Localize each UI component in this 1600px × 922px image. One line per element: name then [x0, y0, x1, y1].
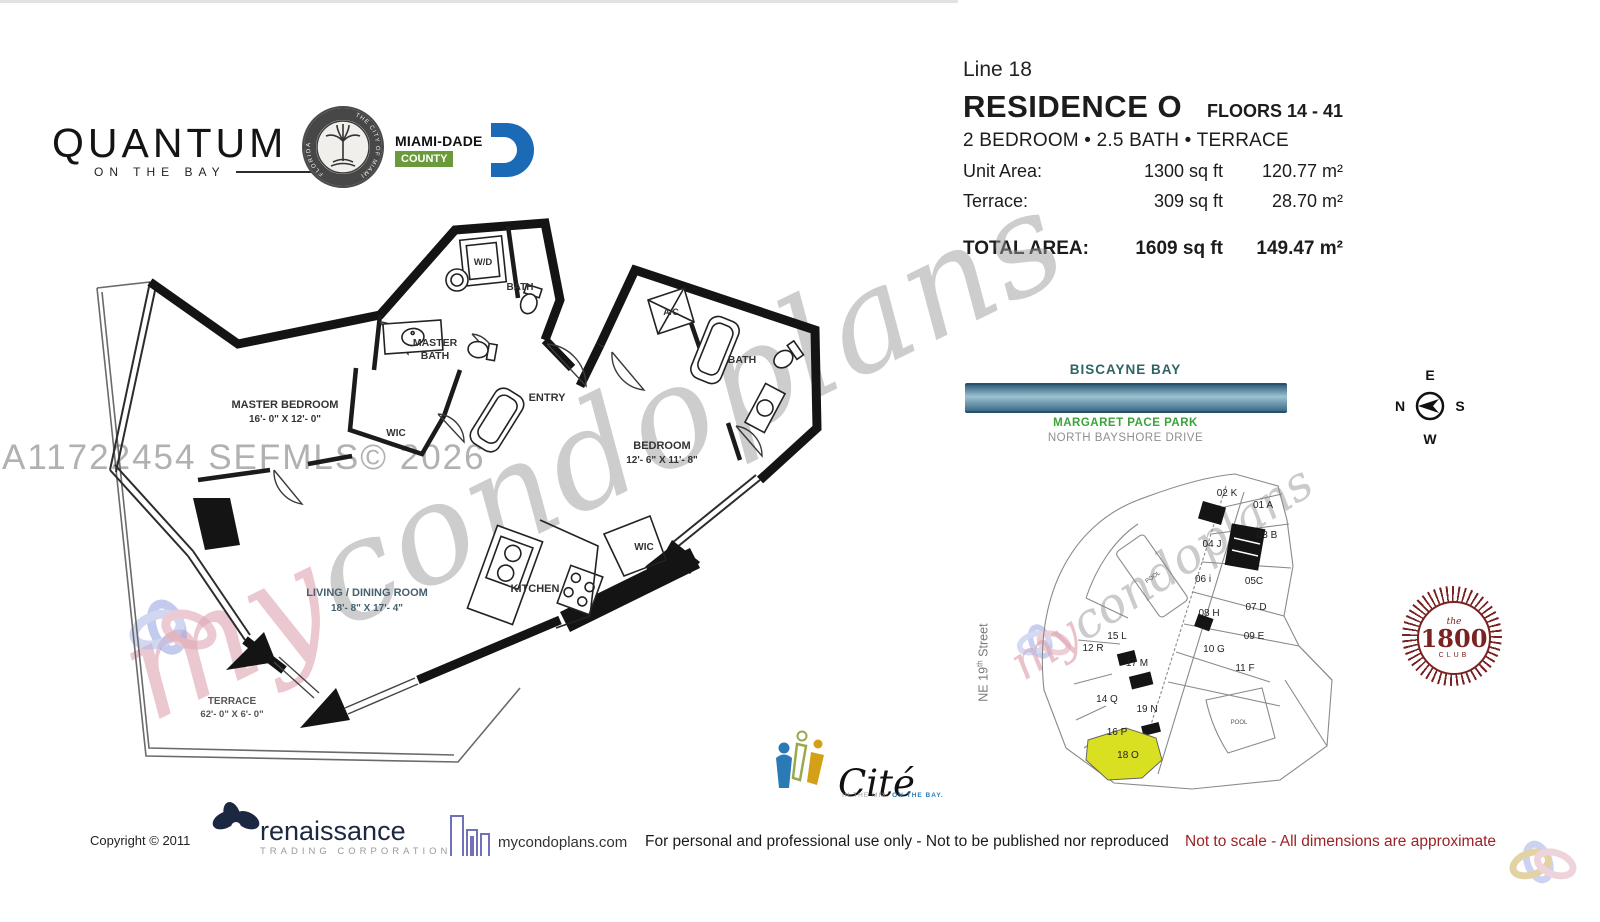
quantum-subtitle: ON THE BAY — [94, 165, 226, 179]
unit-18O: 18 O — [1117, 750, 1139, 761]
powder-bath-label: BATH — [506, 282, 533, 293]
master-bedroom-dims: 16'- 0" X 12'- 0" — [249, 414, 321, 425]
unit-19N: 19 N — [1136, 704, 1157, 715]
scan-edge — [0, 0, 958, 3]
unit-area-sqft: 1300 sq ft — [1113, 161, 1223, 182]
bedroom-tub — [688, 313, 742, 386]
club-1800-number: 1800 — [1421, 627, 1488, 651]
street-sup: th — [975, 660, 984, 667]
quantum-title: QUANTUM — [52, 120, 328, 167]
terrace-dims: 62'- 0" X 6'- 0" — [200, 709, 263, 720]
master-bath-label-2: BATH — [421, 350, 449, 362]
renaissance-logo: renaissance TRADING CORPORATION — [212, 800, 451, 857]
bedroom-label: BEDROOM — [633, 440, 690, 452]
ac-label: A/C — [663, 307, 679, 317]
residence-title: RESIDENCE O — [963, 89, 1182, 125]
pool-upper-label: POOL — [1145, 570, 1163, 585]
trefoil-watermark-corner — [1508, 838, 1578, 912]
unit-14Q: 14 Q — [1096, 694, 1118, 705]
unit-05C: 05C — [1245, 576, 1263, 587]
unit-04J: 04 J — [1203, 539, 1222, 550]
compass-needle — [1418, 399, 1439, 413]
unit-16P: 16 P — [1107, 727, 1128, 738]
mycondoplans-buildings-icon — [448, 810, 492, 858]
terrace-area-sqft: 309 sq ft — [1113, 191, 1223, 212]
unit-02K: 02 K — [1217, 488, 1238, 499]
total-area-sqm: 149.47 m² — [1223, 238, 1343, 260]
miami-dade-county: COUNTY — [395, 151, 453, 167]
cite-figures-icon — [772, 722, 834, 800]
compass-e: E — [1425, 367, 1434, 383]
living-dining-dims: 18'- 8" X 17'- 4" — [331, 603, 403, 614]
compass-n: N — [1395, 398, 1405, 414]
floors-label: FLOORS 14 - 41 — [1207, 101, 1343, 122]
renaissance-trefoil-icon — [212, 800, 260, 856]
biscayne-bay-label: BISCAYNE BAY — [963, 362, 1288, 377]
cite-tagline: IN THE MIX. ON THE BAY. — [842, 792, 944, 799]
bedroom-toilet — [770, 341, 804, 372]
terrace-label: TERRACE — [208, 696, 257, 707]
living-dining-label: LIVING / DINING ROOM — [306, 587, 428, 599]
entry-label: ENTRY — [529, 392, 567, 404]
wall-chunks — [193, 498, 700, 632]
pool-lower-label: POOL — [1231, 720, 1248, 726]
line-label: Line 18 — [963, 58, 1343, 82]
biscayne-bay-water — [965, 383, 1287, 413]
unit-03B: 03 B — [1257, 530, 1278, 541]
renaissance-name: renaissance — [260, 818, 451, 845]
unit-17M: 17 M — [1126, 658, 1148, 669]
unit-08H: 08 H — [1198, 608, 1219, 619]
club-1800-club: CLUB — [1439, 652, 1470, 659]
renaissance-sub: TRADING CORPORATION — [260, 846, 451, 857]
unit-01A: 01 A — [1253, 500, 1273, 511]
bedroom-vanity — [745, 383, 785, 432]
margaret-pace-park-label: MARGARET PACE PARK — [963, 417, 1288, 429]
terrace-outline — [97, 282, 520, 762]
cite-logo: Cité — [772, 722, 915, 800]
site-key-plan: POOL POOL 02 K 01 A 03 B 04 J 06 i 05C 0… — [1030, 448, 1340, 793]
unit-15L: 15 L — [1107, 631, 1127, 642]
mycondoplans-url: mycondoplans.com — [498, 834, 627, 851]
city-of-miami-seal: THE CITY OF MIAMI FLORIDA — [301, 105, 385, 189]
street-prefix: NE 19 — [977, 667, 991, 702]
cite-tagline-gray: IN THE MIX. — [842, 792, 889, 799]
wd-label: W/D — [474, 257, 493, 268]
master-bath-label-1: MASTER — [413, 337, 458, 349]
terrace-area-sqm: 28.70 m² — [1223, 191, 1343, 212]
compass-w: W — [1423, 431, 1437, 447]
unit-10G: 10 G — [1203, 644, 1225, 655]
master-tub — [466, 384, 527, 455]
quantum-logo: QUANTUM ON THE BAY — [52, 120, 328, 179]
miami-dade-name: MIAMI-DADE — [395, 133, 483, 149]
residence-subtitle: 2 BEDROOM • 2.5 BATH • TERRACE — [963, 130, 1343, 152]
unit-09E: 09 E — [1244, 631, 1265, 642]
miami-dade-logo: MIAMI-DADE COUNTY — [395, 121, 537, 179]
compass-s: S — [1455, 398, 1464, 414]
miami-dade-d-icon — [487, 121, 537, 179]
street-suffix: Street — [977, 623, 991, 656]
compass-rose: E N S W — [1390, 362, 1470, 447]
bedroom-dims: 12'- 6" X 11'- 8" — [626, 455, 698, 466]
unit-06i: 06 i — [1195, 574, 1211, 585]
kitchen-island — [467, 525, 542, 624]
unit-11F: 11 F — [1235, 663, 1254, 674]
floor-plan: MASTER BEDROOM 16'- 0" X 12'- 0" MASTER … — [88, 218, 823, 778]
ne-19th-street-label: NE 19th Street — [975, 583, 990, 743]
usage-disclaimer: For personal and professional use only -… — [645, 833, 1169, 851]
unit-12R: 12 R — [1082, 643, 1103, 654]
kitchen-wic-label: WIC — [634, 542, 653, 553]
cite-tagline-blue: ON THE BAY. — [892, 792, 944, 799]
copyright-text: Copyright © 2011 — [90, 833, 190, 848]
scale-disclaimer: Not to scale - All dimensions are approx… — [1185, 833, 1496, 851]
master-toilet — [467, 340, 497, 361]
club-1800-logo: the 1800 CLUB — [1396, 582, 1508, 690]
north-bayshore-drive-label: NORTH BAYSHORE DRIVE — [963, 432, 1288, 444]
bedroom-bath-label: BATH — [728, 354, 756, 366]
total-area-sqft: 1609 sq ft — [1113, 238, 1223, 260]
unit-07D: 07 D — [1245, 602, 1266, 613]
kitchen-label: KITCHEN — [511, 583, 560, 595]
unit-area-sqm: 120.77 m² — [1223, 161, 1343, 182]
master-wic-label: WIC — [386, 428, 405, 439]
site-outline — [1042, 474, 1332, 789]
master-bedroom-label: MASTER BEDROOM — [232, 399, 339, 411]
